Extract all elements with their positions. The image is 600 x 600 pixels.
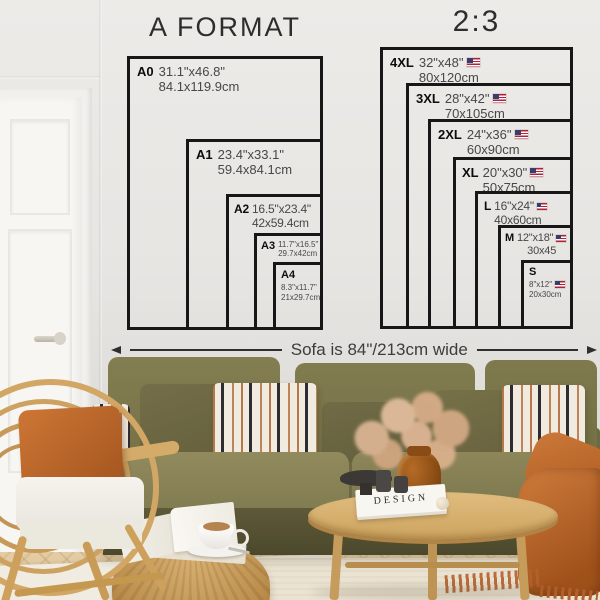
table-leg — [428, 540, 437, 600]
size-frame-a4: A4 8.3"x11.7" 21x29.7cm — [273, 262, 323, 330]
rattan-chair — [0, 385, 180, 600]
wall-trim-vertical — [99, 0, 102, 440]
cup-handle — [231, 529, 249, 547]
size-label-m: M 12"x18" 30x45 — [501, 228, 570, 258]
black-bowl-stem — [360, 483, 372, 495]
size-label-4xl: 4XL 32"x48" 80x120cm — [383, 50, 570, 86]
size-label-3xl: 3XL 28"x42" 70x105cm — [409, 86, 570, 122]
size-label-a3: A3 11.7"x16.5" 29.7x42cm — [257, 236, 320, 259]
size-label-a4: A4 8.3"x11.7" 21x29.7cm — [276, 265, 320, 303]
throw-pillow-striped — [213, 383, 317, 463]
arrow-line — [130, 349, 282, 351]
arrow-line — [477, 349, 578, 351]
us-flag-icon — [556, 235, 566, 242]
us-flag-icon — [537, 203, 547, 210]
us-flag-icon — [515, 130, 528, 139]
amber-vase-neck — [407, 446, 431, 456]
arrow-left-icon — [111, 346, 121, 354]
table-brace — [345, 562, 520, 568]
black-candle — [394, 476, 408, 493]
size-frame-s: S 8"x12" 20x30cm — [521, 260, 573, 329]
size-label-2xl: 2XL 24"x36" 60x90cm — [431, 122, 570, 158]
us-flag-icon — [493, 94, 506, 103]
us-flag-icon — [555, 281, 565, 288]
sofa-width-label: Sofa is 84"/213cm wide — [291, 340, 468, 360]
black-candle — [376, 470, 391, 492]
arrow-right-icon — [587, 346, 597, 354]
a-format-title: A FORMAT — [127, 12, 323, 43]
us-flag-icon — [467, 58, 480, 67]
decor-ball — [436, 497, 449, 510]
size-label-l: L 16"x24" 40x60cm — [478, 194, 570, 227]
size-label-s: S 8"x12" 20x30cm — [524, 263, 570, 300]
door-handle-rosette — [54, 332, 66, 345]
poster-size-guide-photo: A FORMAT A0 31.1"x46.8" 84.1x119.9cm A1 … — [0, 0, 600, 600]
us-flag-icon — [530, 168, 543, 177]
door-panel-top — [10, 119, 70, 215]
size-label-a2: A2 16.5"x23.4" 42x59.4cm — [229, 197, 320, 230]
wall-trim-horizontal — [0, 76, 100, 79]
coffee-surface — [203, 522, 230, 531]
size-label-a1: A1 23.4"x33.1" 59.4x84.1cm — [189, 142, 320, 178]
size-label-a0: A0 31.1"x46.8" 84.1x119.9cm — [130, 59, 320, 95]
ratio-2-3-title: 2:3 — [380, 5, 573, 39]
